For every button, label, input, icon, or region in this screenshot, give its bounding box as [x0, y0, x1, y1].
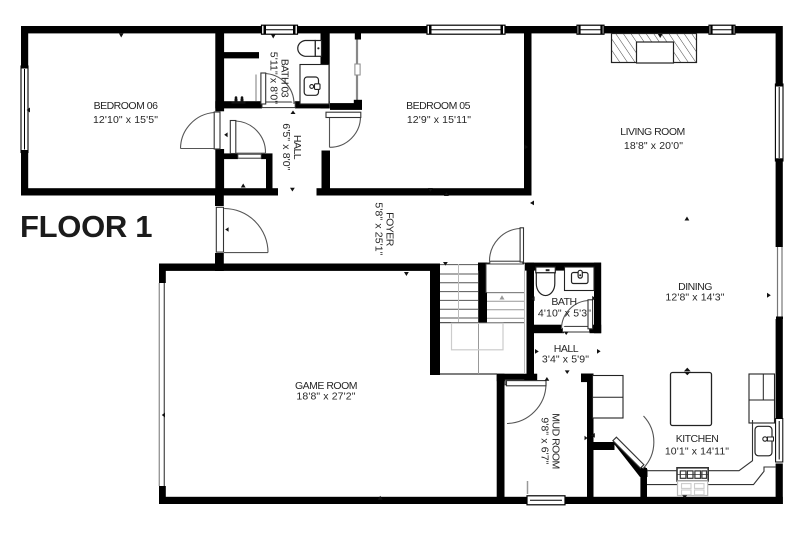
svg-text:LIVING ROOM: LIVING ROOM — [620, 126, 685, 138]
svg-text:12'9" x 15'11": 12'9" x 15'11" — [407, 114, 471, 126]
svg-text:18'8" x 27'2": 18'8" x 27'2" — [296, 390, 355, 402]
svg-text:12'8" x 14'3": 12'8" x 14'3" — [665, 292, 724, 304]
svg-text:BEDROOM 05: BEDROOM 05 — [406, 100, 471, 112]
svg-text:BEDROOM 06: BEDROOM 06 — [94, 100, 159, 112]
svg-text:MUD ROOM9'8" x 6'7": MUD ROOM9'8" x 6'7" — [539, 413, 562, 469]
svg-text:4'10" x 5'3": 4'10" x 5'3" — [538, 308, 591, 320]
svg-text:18'8" x 20'0": 18'8" x 20'0" — [624, 140, 683, 152]
svg-text:BATH: BATH — [551, 296, 576, 308]
svg-text:12'10" x 15'5": 12'10" x 15'5" — [93, 114, 158, 126]
svg-text:10'1" x 14'11": 10'1" x 14'11" — [665, 446, 729, 458]
svg-text:3'4" x 5'9": 3'4" x 5'9" — [542, 354, 589, 366]
svg-text:BATH 035'11" x 8'0": BATH 035'11" x 8'0" — [268, 52, 291, 105]
svg-text:FLOOR 1: FLOOR 1 — [20, 209, 152, 244]
svg-text:KITCHEN: KITCHEN — [676, 433, 719, 445]
